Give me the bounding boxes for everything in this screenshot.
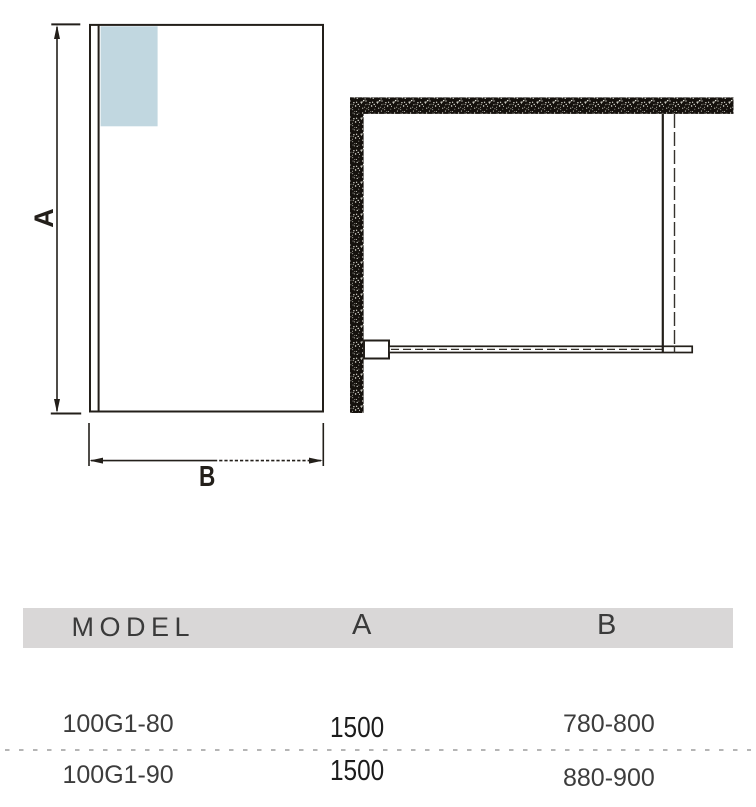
svg-text:A: A: [29, 208, 59, 228]
svg-text:B: B: [199, 459, 215, 492]
